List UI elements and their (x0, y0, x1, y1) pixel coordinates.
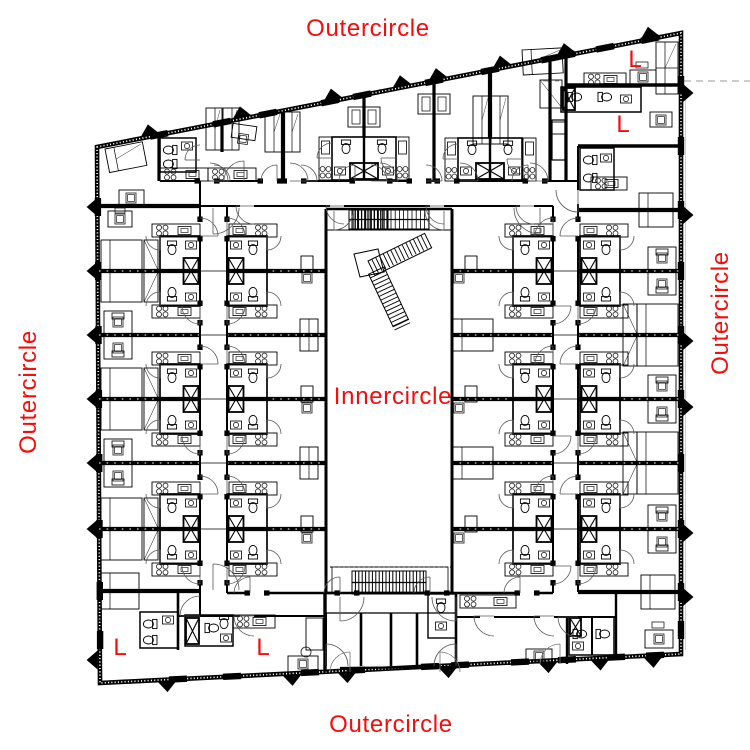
svg-text:L: L (256, 634, 269, 661)
svg-text:Outercircle: Outercircle (707, 251, 734, 375)
svg-text:L: L (113, 634, 126, 661)
svg-text:Outercircle: Outercircle (306, 15, 430, 42)
svg-text:Innercircle: Innercircle (334, 383, 452, 410)
svg-text:L: L (628, 46, 641, 73)
svg-text:L: L (616, 111, 629, 138)
svg-text:Outercircle: Outercircle (15, 330, 42, 454)
svg-text:Outercircle: Outercircle (329, 711, 453, 738)
